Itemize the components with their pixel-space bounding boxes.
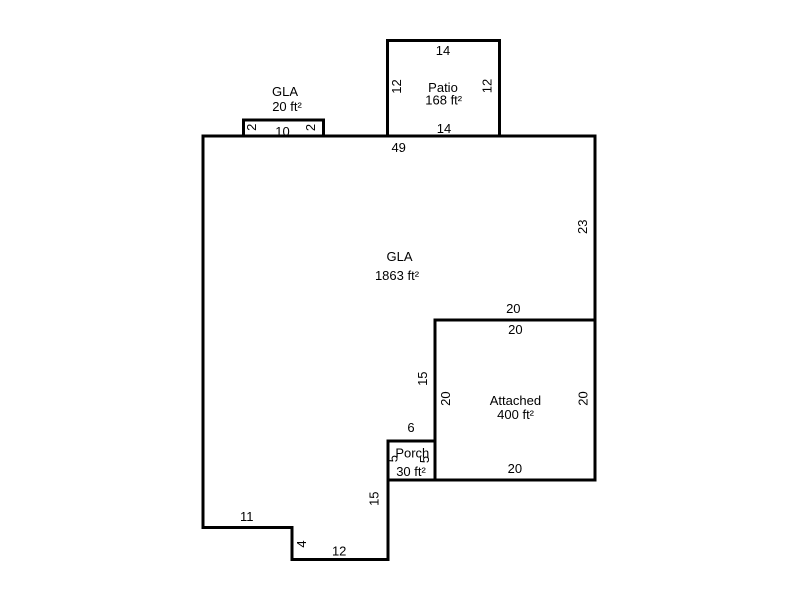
svg-text:20 ft²: 20 ft² bbox=[272, 99, 302, 114]
svg-text:30 ft²: 30 ft² bbox=[396, 464, 426, 479]
svg-text:15: 15 bbox=[367, 491, 382, 505]
svg-text:20: 20 bbox=[508, 322, 522, 337]
svg-text:20: 20 bbox=[438, 391, 453, 405]
svg-text:2: 2 bbox=[244, 124, 259, 131]
svg-text:168 ft²: 168 ft² bbox=[425, 93, 463, 108]
svg-text:Attached: Attached bbox=[490, 393, 541, 408]
svg-text:12: 12 bbox=[332, 544, 346, 559]
svg-text:2: 2 bbox=[303, 124, 318, 131]
svg-text:12: 12 bbox=[480, 79, 495, 93]
svg-text:6: 6 bbox=[407, 420, 414, 435]
svg-text:20: 20 bbox=[575, 391, 590, 405]
svg-text:GLA: GLA bbox=[386, 249, 412, 264]
svg-text:4: 4 bbox=[294, 540, 309, 547]
svg-text:1863 ft²: 1863 ft² bbox=[375, 268, 420, 283]
svg-text:400 ft²: 400 ft² bbox=[497, 407, 535, 422]
svg-text:5: 5 bbox=[417, 456, 432, 463]
svg-text:20: 20 bbox=[506, 301, 520, 316]
svg-text:GLA: GLA bbox=[272, 84, 298, 99]
svg-text:5: 5 bbox=[385, 455, 400, 462]
svg-text:11: 11 bbox=[240, 509, 254, 524]
svg-text:10: 10 bbox=[275, 124, 289, 139]
svg-text:15: 15 bbox=[415, 371, 430, 385]
svg-text:14: 14 bbox=[436, 43, 450, 58]
svg-text:49: 49 bbox=[391, 140, 405, 155]
svg-text:20: 20 bbox=[508, 461, 522, 476]
svg-text:12: 12 bbox=[389, 79, 404, 93]
svg-text:14: 14 bbox=[437, 121, 451, 136]
svg-text:23: 23 bbox=[575, 220, 590, 234]
